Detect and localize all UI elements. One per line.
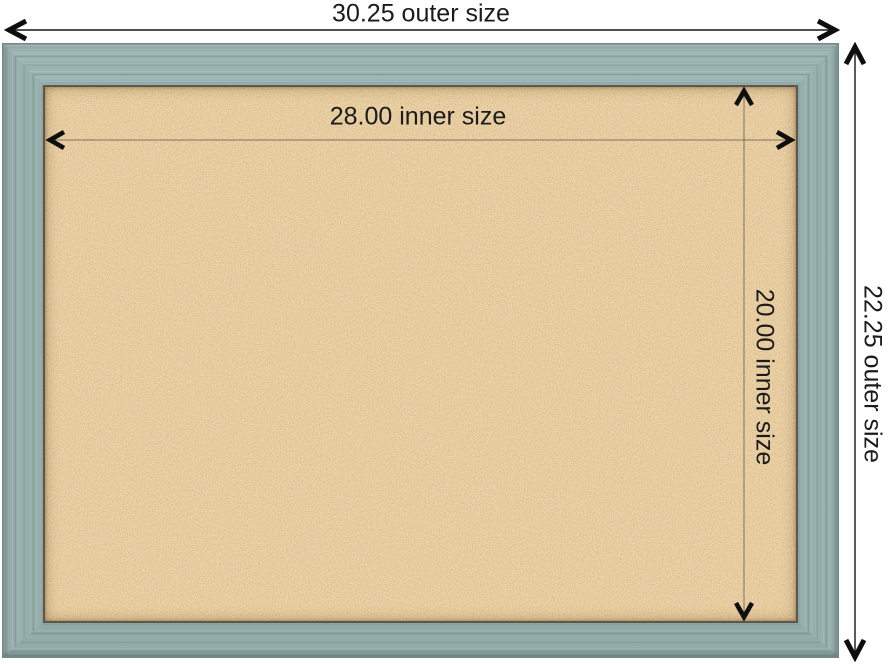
outer-width-dimension-line (4, 19, 840, 41)
cork-surface (45, 87, 796, 621)
inner-width-dimension-line (44, 129, 797, 151)
outer-height-dimension-line (844, 42, 866, 662)
corkboard-dimension-diagram: 30.25 outer size 22.25 outer size 28.00 … (0, 0, 889, 664)
inner-height-label: 20.00 inner size (752, 289, 777, 466)
cork-edge-shadow (45, 87, 796, 621)
inner-height-dimension-line (733, 86, 755, 622)
inner-width-label: 28.00 inner size (330, 105, 507, 130)
